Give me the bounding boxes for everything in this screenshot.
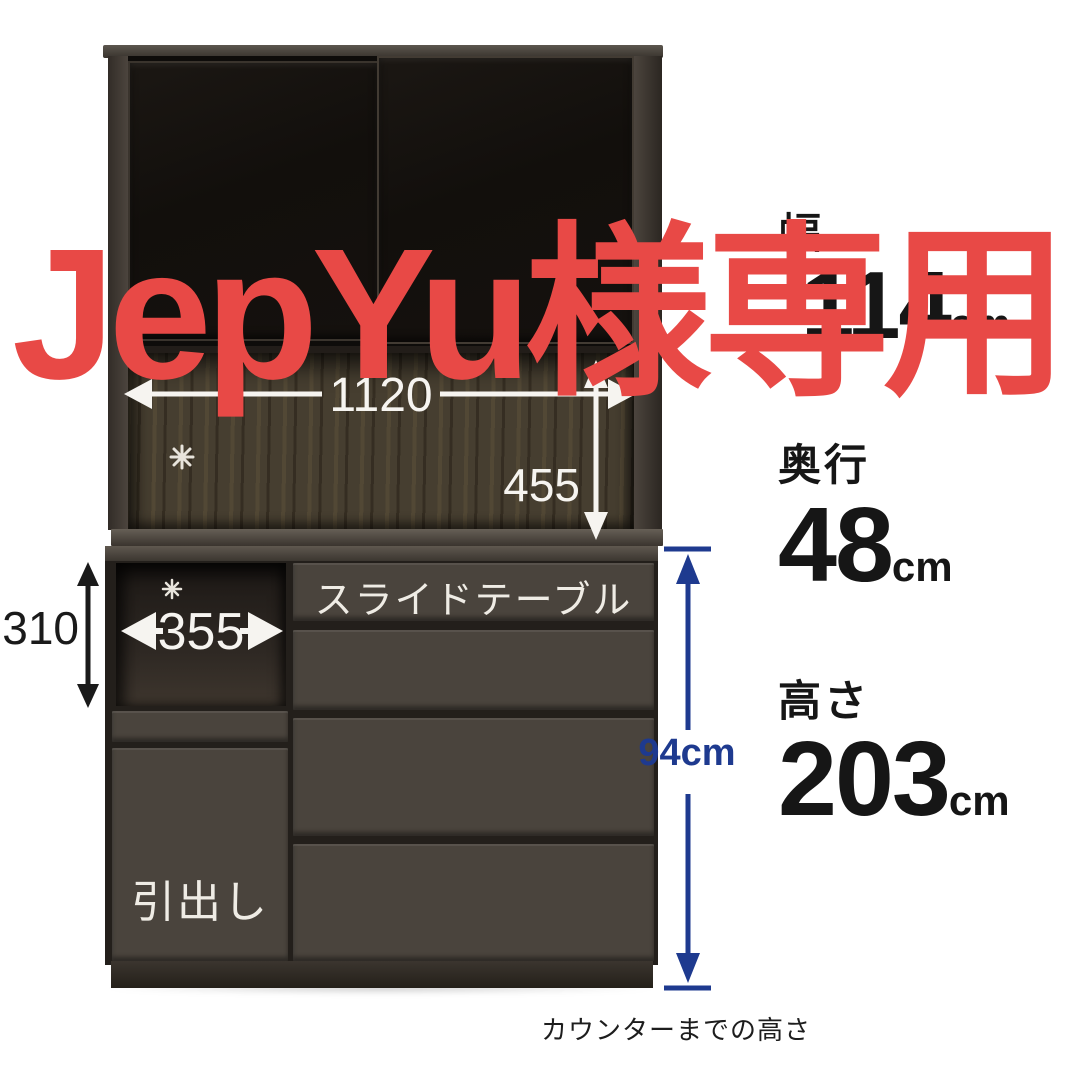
niche-310-arrow xyxy=(77,562,99,708)
note-asterisk-niche xyxy=(163,580,181,598)
niche-310-label: 310 xyxy=(2,602,79,654)
note-asterisk-counter xyxy=(171,446,193,468)
clearance-455-label: 455 xyxy=(503,459,580,511)
reserved-overlay-text: JepYu様専用 xyxy=(12,222,1062,408)
niche-355-label: 355 xyxy=(158,603,245,661)
dimension-overlay: 1120 455 310 355 94cm xyxy=(0,0,1080,1080)
counter-94-label: 94cm xyxy=(638,732,735,774)
listing-image: { "overlay": { "reserved_text": "JepYu様専… xyxy=(0,0,1080,1080)
